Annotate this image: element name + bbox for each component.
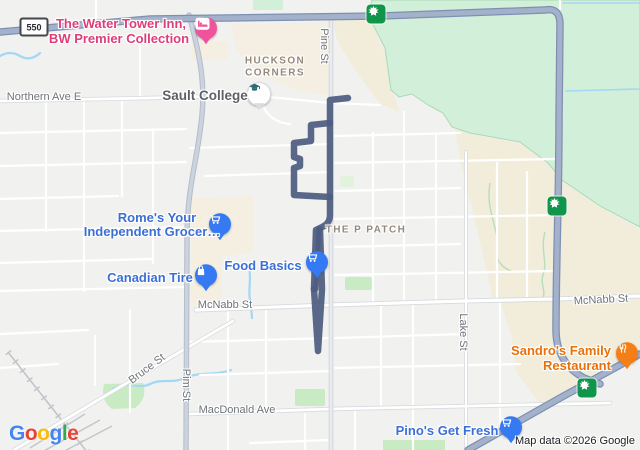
maple-leaf-icon xyxy=(367,5,381,19)
map-viewport[interactable]: 550 xyxy=(0,0,640,450)
graduation-cap-icon xyxy=(248,83,261,94)
poi-label-food-basics[interactable]: Food Basics xyxy=(224,259,301,273)
area-label-huckson-line1: HUCKSON xyxy=(245,56,305,67)
maple-leaf-icon xyxy=(578,379,592,393)
poi-pin-sault-college[interactable] xyxy=(247,82,271,106)
poi-label-romes-line1[interactable]: Rome's Your xyxy=(118,211,196,225)
area-label-huckson-line2: CORNERS xyxy=(245,68,305,79)
map-attribution: Map data ©2026 Google xyxy=(515,435,635,447)
restaurant-icon xyxy=(616,342,628,354)
shopping-cart-icon xyxy=(500,416,512,428)
trans-canada-badge-north xyxy=(367,5,386,24)
shopping-bag-icon xyxy=(195,264,207,276)
trans-canada-badge-south xyxy=(578,379,597,398)
poi-label-canadian-tire[interactable]: Canadian Tire xyxy=(107,271,193,285)
poi-pin-food-basics[interactable] xyxy=(306,251,328,273)
poi-pin-canadian-tire[interactable] xyxy=(195,264,217,286)
poi-label-water-tower-line1[interactable]: The Water Tower Inn, xyxy=(56,17,186,31)
poi-label-pinos[interactable]: Pino's Get Fresh xyxy=(396,424,499,438)
poi-pin-water-tower-inn[interactable] xyxy=(195,17,217,39)
poi-label-sandros-line2[interactable]: Restaurant xyxy=(543,359,611,373)
hwy-shield-550-label: 550 xyxy=(26,22,41,32)
area-label-p-patch: THE P PATCH xyxy=(326,225,406,236)
poi-label-water-tower-line2[interactable]: BW Premier Collection xyxy=(49,32,189,46)
street-label-lake-st: Lake St xyxy=(457,313,469,350)
google-logo[interactable]: Google xyxy=(9,422,78,446)
hotel-bed-icon xyxy=(195,17,210,30)
street-label-mcnabb-left: McNabb St xyxy=(198,299,252,311)
trans-canada-badge-east xyxy=(548,197,567,216)
poi-label-sault-college[interactable]: Sault College xyxy=(162,89,248,103)
poi-label-romes-line2[interactable]: Independent Grocer… xyxy=(84,225,221,239)
poi-pin-sandros-restaurant[interactable] xyxy=(616,342,638,364)
street-label-macdonald-ave: MacDonald Ave xyxy=(199,404,276,416)
maple-leaf-icon xyxy=(548,197,562,211)
shopping-cart-icon xyxy=(306,251,318,263)
street-label-pine-st: Pine St xyxy=(318,28,330,63)
street-label-pim-st: Pim St xyxy=(180,369,192,401)
hwy-shield-550: 550 xyxy=(20,18,49,37)
poi-label-sandros-line1[interactable]: Sandro's Family xyxy=(511,344,611,358)
street-label-northern-ave: Northern Ave E xyxy=(7,91,81,103)
